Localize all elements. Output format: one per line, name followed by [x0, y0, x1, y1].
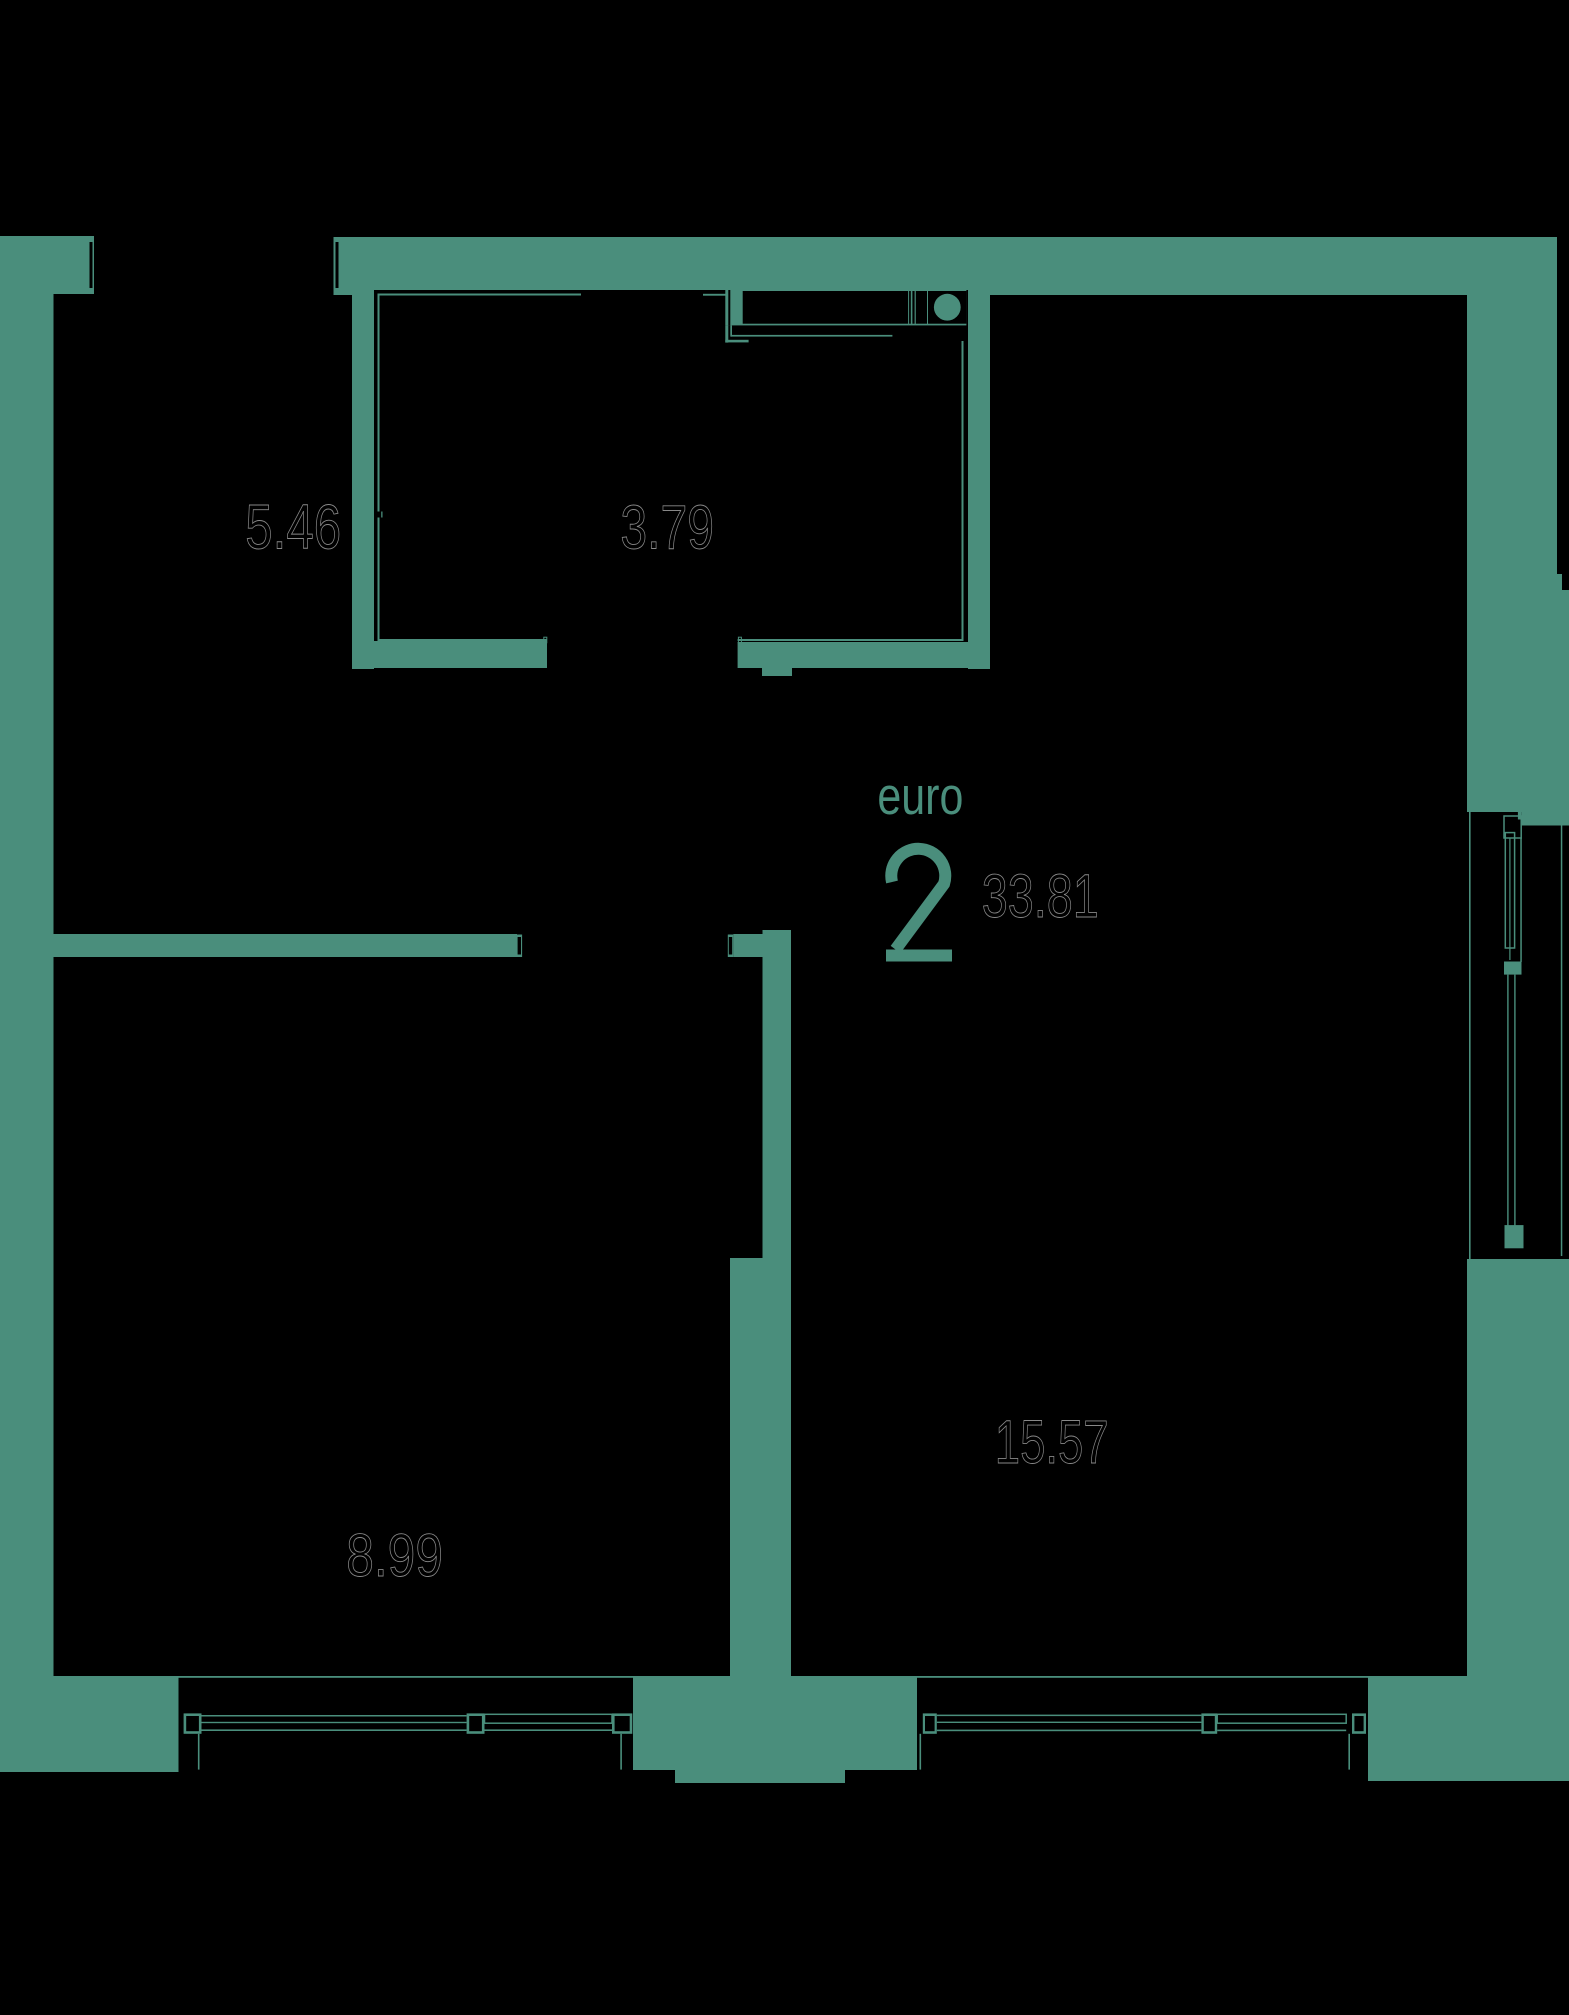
svg-text:3.79: 3.79: [620, 494, 714, 563]
svg-text:euro: euro: [877, 767, 963, 826]
svg-text:5.46: 5.46: [245, 493, 341, 563]
svg-text:33.81: 33.81: [982, 862, 1099, 931]
svg-text:8.99: 8.99: [346, 1521, 443, 1589]
svg-text:15.57: 15.57: [995, 1408, 1109, 1476]
